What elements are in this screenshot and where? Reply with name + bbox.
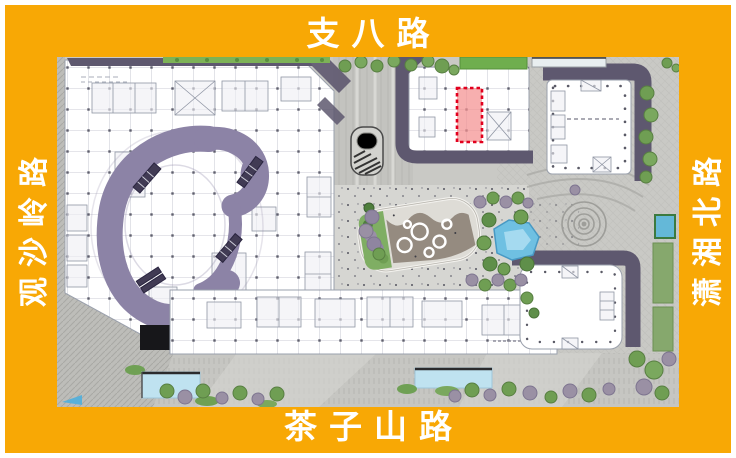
ramp-structure [351, 127, 383, 175]
road-name-guanshaling: 观沙岭路 [9, 147, 53, 317]
road-label-top: 支八路 [57, 5, 679, 57]
north-roadside-green [460, 57, 606, 69]
road-label-bottom: 茶子山路 [57, 401, 679, 447]
site-plan-map [57, 57, 679, 407]
north-center-building [402, 57, 533, 163]
road-name-chazishan: 茶子山路 [272, 400, 464, 448]
highlight-marker [457, 88, 482, 142]
east-green-strip [653, 215, 675, 351]
road-label-right: 潇湘北路 [679, 57, 731, 407]
site-plan-svg [57, 57, 679, 407]
road-name-zhiba: 支八路 [295, 7, 442, 55]
road-name-xiaoxiangbei: 潇湘北路 [683, 147, 727, 317]
road-label-left: 观沙岭路 [5, 57, 57, 407]
screenshot-page: 支八路 茶子山路 观沙岭路 潇湘北路 [0, 0, 736, 458]
roof-hedge [163, 57, 330, 63]
entrance-block [140, 325, 172, 350]
roundabout [562, 202, 606, 246]
south-podium-building [170, 290, 557, 354]
northeast-tower [543, 72, 643, 181]
orange-frame: 支八路 茶子山路 观沙岭路 潇湘北路 [5, 5, 731, 453]
small-pool [655, 215, 675, 238]
